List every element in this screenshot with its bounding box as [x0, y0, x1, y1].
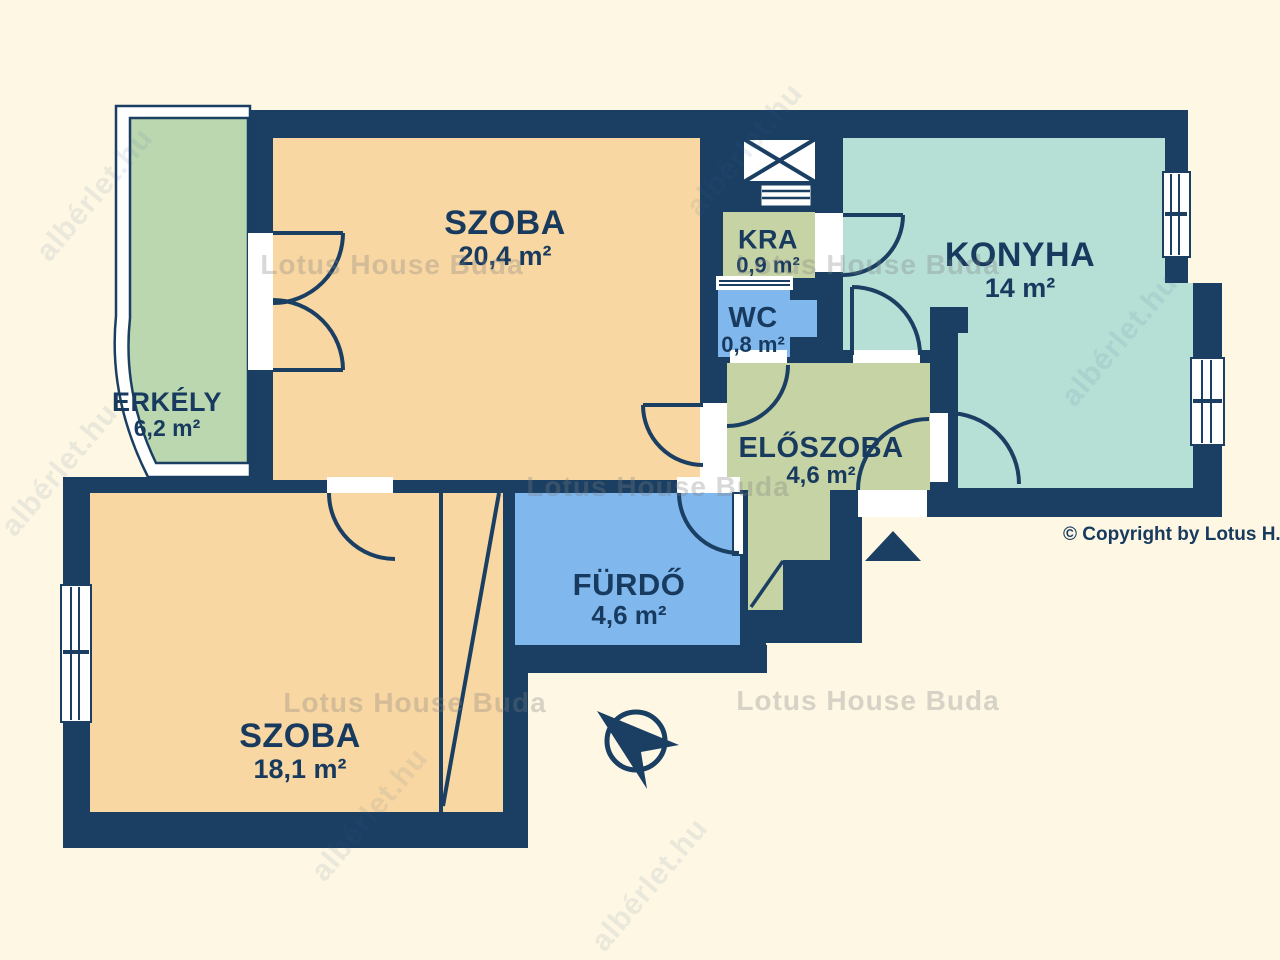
room-pantry [723, 212, 815, 278]
wall-room2-bottom [63, 812, 528, 848]
bedroom2-window-tick [63, 650, 89, 654]
pantry-wc-threshold [716, 276, 793, 290]
vent-box [760, 184, 812, 207]
kitchen-lower-door-opening [930, 413, 948, 482]
wall-kitchen-pillar [930, 307, 968, 333]
bathroom-door-opening [677, 477, 740, 493]
kitchen-window-lower-tick [1193, 399, 1222, 403]
wall-bath-bottom [503, 645, 767, 673]
floorplan-canvas: SZOBA 20,4 m² KONYHA 14 m² KRA 0,9 m² WC… [0, 0, 1280, 960]
wall-room2-right [503, 645, 528, 848]
pantry-door-opening [815, 213, 843, 272]
room-bathroom [515, 493, 740, 645]
bedroom1-door-opening [700, 403, 727, 477]
room-bedroom1 [273, 138, 700, 480]
floorplan-drawing [0, 0, 1280, 960]
room-balcony [128, 118, 248, 463]
wc-door-opening [730, 350, 787, 363]
kitchen-window-upper-tick [1165, 212, 1187, 216]
hall-kitchen-door-opening [853, 350, 920, 363]
bathroom-door-leaf [733, 493, 744, 555]
wall-bath-left [503, 493, 515, 645]
entrance-door-opening [858, 490, 927, 517]
balcony-door-opening [248, 233, 273, 370]
bedroom2-door-opening [327, 477, 393, 493]
